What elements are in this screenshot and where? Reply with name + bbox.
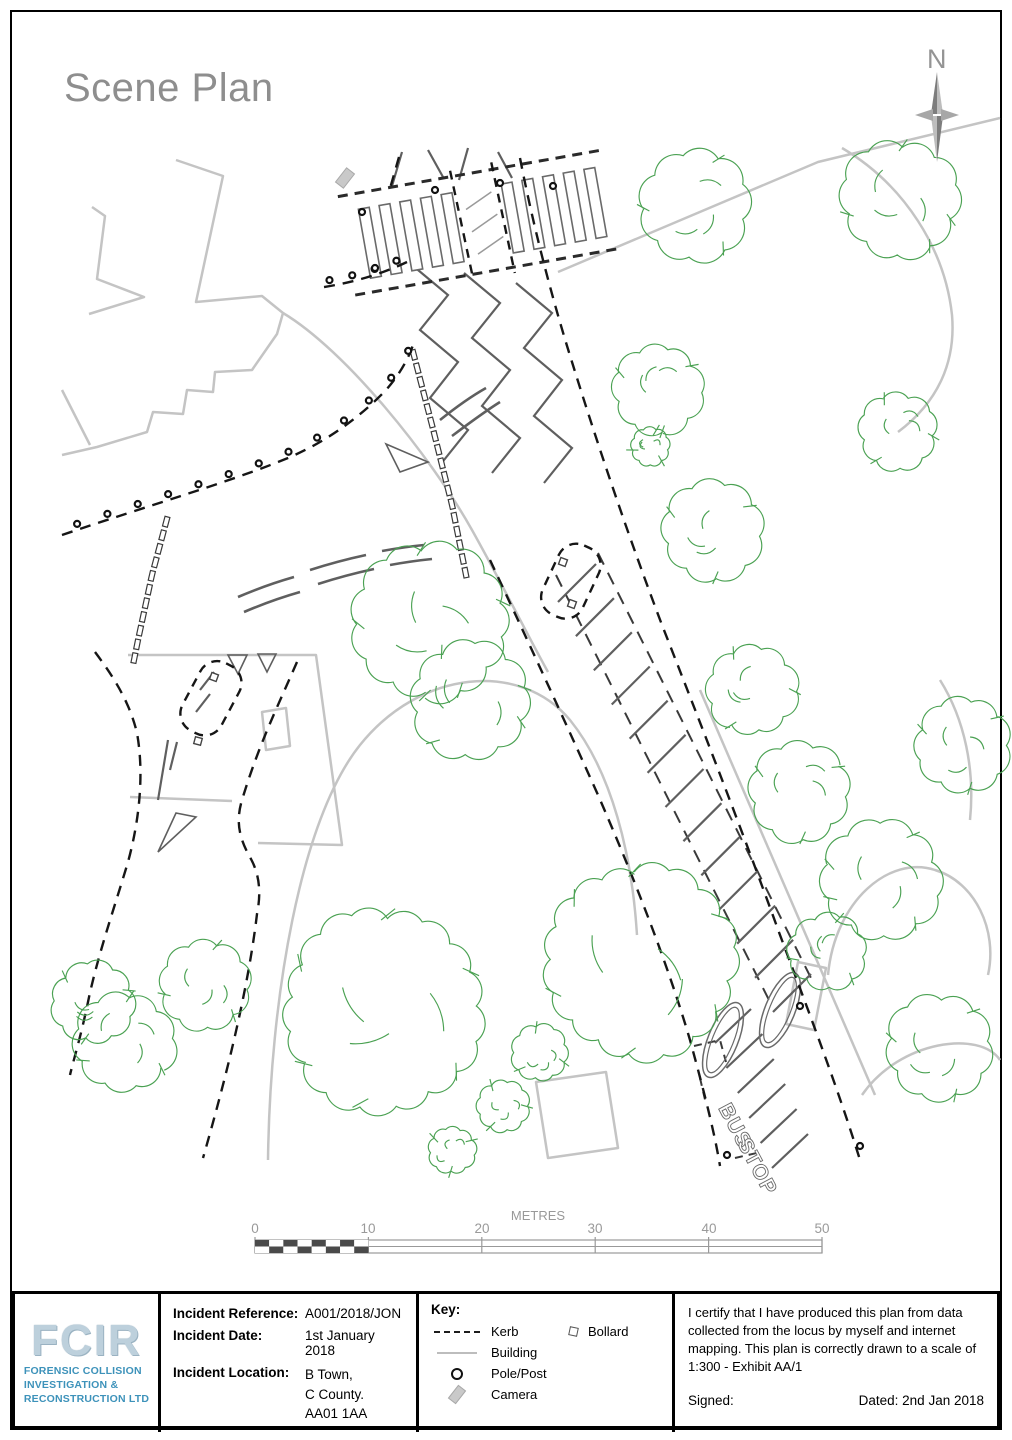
key-item-building: Building	[431, 1342, 660, 1363]
logo-line: RECONSTRUCTION LTD	[24, 1393, 149, 1407]
incident-reference-label: Incident Reference:	[173, 1306, 305, 1321]
scene-plan-map: BUS STOP METRES 0 10 20 30 40 50	[0, 0, 1012, 1280]
kerb-line	[203, 662, 297, 1158]
scale-checker-cell	[354, 1240, 368, 1247]
building-outline	[128, 655, 342, 845]
zebra-stripe	[501, 182, 524, 253]
road-marking	[452, 402, 500, 436]
incident-details: Incident Reference: A001/2018/JON Incide…	[161, 1294, 419, 1432]
pole-post-icon	[451, 1368, 463, 1380]
certification-text: I certify that I have produced this plan…	[688, 1304, 984, 1376]
scale-checker-cell	[269, 1240, 283, 1247]
scale-tick-label: 20	[474, 1221, 489, 1236]
logo-line: INVESTIGATION &	[24, 1379, 149, 1393]
building-outline	[130, 797, 232, 801]
road-marking	[244, 592, 300, 612]
zebra-stripe	[563, 171, 586, 242]
building-outline	[62, 390, 90, 445]
give-way-triangle	[386, 444, 428, 472]
edge-block-marking	[451, 512, 458, 523]
edge-block-marking	[137, 625, 144, 636]
incident-reference-value: A001/2018/JON	[305, 1306, 404, 1321]
edge-block-marking	[142, 598, 149, 609]
dated-label: Dated: 2nd Jan 2018	[859, 1392, 984, 1411]
road-marking	[630, 701, 668, 739]
edge-block-marking	[459, 554, 466, 565]
tree	[819, 820, 943, 940]
road-marking	[428, 150, 443, 177]
edge-block-marking	[148, 570, 155, 581]
pole-post-marker	[405, 348, 411, 354]
logo-line: FORENSIC COLLISION	[24, 1365, 149, 1379]
bollard-marker	[210, 673, 219, 682]
tree	[428, 1126, 477, 1177]
bollard-marker	[194, 737, 203, 746]
tree	[886, 995, 993, 1103]
zebra-stripe	[420, 196, 443, 267]
scale-checker-cell	[255, 1247, 269, 1254]
edge-block-marking	[159, 530, 166, 541]
road-marking	[719, 872, 757, 910]
pole-post-marker	[393, 258, 399, 264]
road-marking	[612, 667, 650, 705]
scale-checker-cell	[340, 1247, 354, 1254]
location-line: AA01 1AA	[305, 1404, 404, 1424]
pole-post-marker	[341, 417, 347, 423]
pole-post-marker	[226, 471, 232, 477]
key-item-pole: Pole/Post	[431, 1363, 660, 1384]
building-outline	[89, 207, 144, 314]
kerb-line-swatch	[434, 1331, 480, 1333]
key-item-label: Building	[491, 1345, 537, 1360]
logo-acronym: FCIR	[31, 1319, 142, 1363]
zebra-stripe	[400, 200, 423, 271]
key-item-bollard: Bollard	[569, 1324, 628, 1339]
zebra-stripe	[522, 178, 545, 249]
pole-post-marker	[165, 491, 171, 497]
scale-checker-cell	[312, 1247, 326, 1254]
scale-unit-label: METRES	[511, 1208, 566, 1223]
edge-block-marking	[435, 444, 442, 455]
road-marking	[761, 1109, 797, 1143]
give-way-triangle	[158, 813, 196, 852]
give-way-triangle	[258, 654, 276, 672]
building-line-swatch	[437, 1352, 477, 1354]
bollard-marker	[568, 600, 577, 609]
road-marking	[318, 569, 374, 584]
pole-post-marker	[724, 1152, 730, 1158]
incident-location-label: Incident Location:	[173, 1365, 305, 1424]
pole-post-marker	[256, 460, 262, 466]
tree	[476, 1079, 533, 1133]
edge-block-marking	[417, 376, 424, 387]
edge-block-marking	[152, 557, 159, 568]
tree	[158, 939, 252, 1031]
tree	[705, 644, 800, 734]
pole-post-marker	[366, 398, 372, 404]
logo-text: FORENSIC COLLISION INVESTIGATION & RECON…	[24, 1365, 149, 1406]
road-marking	[412, 265, 468, 465]
road-marking	[170, 742, 177, 770]
camera-key-icon	[448, 1385, 466, 1405]
pole-post-marker	[74, 521, 80, 527]
scale-bar-checker	[255, 1240, 368, 1253]
scale-checker-cell	[283, 1247, 297, 1254]
building-outline	[536, 1072, 618, 1158]
edge-block-marking	[445, 485, 452, 496]
key-item-label: Bollard	[588, 1324, 628, 1339]
key-item-label: Kerb	[491, 1324, 518, 1339]
tree	[626, 425, 670, 466]
edge-block-marking	[428, 417, 435, 428]
scale-checker-cell	[298, 1247, 312, 1254]
edge-block-marking	[431, 431, 438, 442]
road-marking	[738, 1059, 774, 1093]
edge-block-marking	[424, 404, 431, 415]
north-arrow: N	[903, 44, 973, 184]
tree	[637, 148, 752, 263]
pole-post-marker	[550, 183, 556, 189]
edge-block-marking	[454, 526, 461, 537]
pole-post-marker	[432, 187, 438, 193]
key-item-camera: Camera	[431, 1384, 660, 1405]
road-marking	[392, 152, 402, 186]
kerb-line	[490, 560, 720, 1166]
pole-post-marker	[388, 375, 394, 381]
scale-checker-cell	[255, 1240, 269, 1247]
kerbs-layer	[62, 157, 860, 1166]
tree	[661, 479, 764, 584]
building-outline	[268, 681, 637, 1160]
road-marking	[238, 577, 294, 597]
tree	[511, 1021, 569, 1081]
edge-block-marking	[414, 363, 421, 374]
scale-tick-label: 40	[701, 1221, 716, 1236]
edge-block-marking	[462, 567, 469, 578]
tree	[611, 344, 704, 438]
company-logo: FCIR FORENSIC COLLISION INVESTIGATION & …	[15, 1294, 161, 1432]
tree	[748, 741, 850, 844]
edge-block-marking	[421, 390, 428, 401]
pole-post-marker	[359, 209, 365, 215]
key-item-label: Camera	[491, 1387, 537, 1402]
location-line: C County.	[305, 1385, 404, 1405]
road-marking	[737, 906, 775, 944]
hatch-boundary	[598, 553, 812, 980]
road-roundel	[694, 997, 752, 1082]
scale-tick-label: 0	[251, 1221, 259, 1236]
bus-stop-road-text: BUS STOP	[714, 1100, 782, 1199]
road-marking	[666, 769, 704, 807]
pole-post-marker	[497, 180, 503, 186]
north-label: N	[927, 44, 947, 75]
scale-bar: METRES 0 10 20 30 40 50	[251, 1208, 829, 1253]
pole-post-marker	[195, 481, 201, 487]
edge-block-marking	[131, 653, 138, 664]
road-marking	[558, 564, 596, 602]
building-outline	[62, 160, 283, 455]
signed-label: Signed:	[688, 1392, 734, 1411]
scale-checker-cell	[340, 1240, 354, 1247]
pole-post-marker	[857, 1143, 863, 1149]
road-marking	[158, 740, 168, 800]
camera-icon	[336, 168, 355, 188]
scale-checker-cell	[312, 1240, 326, 1247]
tree	[410, 640, 531, 760]
road-marking	[390, 559, 432, 565]
key-title: Key:	[431, 1302, 660, 1317]
scale-tick-label: 30	[587, 1221, 602, 1236]
road-marking	[196, 694, 210, 712]
pole-post-marker	[349, 272, 355, 278]
road-marking	[594, 632, 632, 670]
edge-block-marking	[139, 612, 146, 623]
scale-tick-label: 10	[360, 1221, 375, 1236]
key-item-label: Pole/Post	[491, 1366, 547, 1381]
zebra-stripe	[441, 193, 464, 264]
pole-post-marker	[797, 1003, 803, 1009]
pole-post-marker	[104, 511, 110, 517]
title-block: FCIR FORENSIC COLLISION INVESTIGATION & …	[12, 1291, 1000, 1429]
tree	[914, 696, 1010, 794]
edge-block-marking	[134, 639, 141, 650]
road-marking	[749, 1084, 785, 1118]
building-outline	[842, 148, 953, 432]
pole-post-marker	[135, 501, 141, 507]
building-outline	[862, 1043, 1000, 1095]
edge-block-marking	[162, 516, 169, 527]
scale-checker-cell	[326, 1247, 340, 1254]
scale-checker-cell	[298, 1240, 312, 1247]
edge-block-marking	[145, 584, 152, 595]
scale-checker-cell	[326, 1240, 340, 1247]
road-marking	[516, 283, 572, 483]
scale-tick-labels: 0 10 20 30 40 50	[251, 1221, 829, 1236]
road-marking	[310, 555, 366, 570]
building-outline	[700, 690, 875, 1095]
refuge-island	[174, 654, 249, 742]
pole-post-marker	[286, 449, 292, 455]
bollard-marker	[559, 558, 568, 567]
pole-post-marker	[372, 265, 378, 271]
incident-date-label: Incident Date:	[173, 1328, 305, 1358]
scale-checker-cell	[354, 1247, 368, 1254]
road-marking	[772, 1134, 808, 1168]
scale-checker-cell	[269, 1247, 283, 1254]
road-marking	[683, 803, 721, 841]
zebra-crossing	[337, 143, 623, 301]
certification: I certify that I have produced this plan…	[675, 1294, 997, 1432]
hatch-boundary	[556, 575, 770, 1002]
kerb-line	[520, 158, 860, 1160]
building-outline	[262, 708, 290, 750]
road-marking	[701, 837, 739, 875]
location-line: B Town,	[305, 1365, 404, 1385]
incident-location-value: B Town, C County. AA01 1AA	[305, 1365, 404, 1424]
tree	[51, 960, 136, 1044]
pole-post-marker	[314, 435, 320, 441]
map-key: Key: Kerb Building Pole/Post Camera Boll…	[419, 1294, 675, 1432]
scale-checker-cell	[283, 1240, 297, 1247]
zebra-stripe	[584, 168, 607, 239]
road-marking	[726, 1034, 762, 1068]
road-marking	[464, 273, 520, 473]
bollard-icon	[568, 1326, 579, 1337]
scale-tick-label: 50	[814, 1221, 829, 1236]
tree	[283, 908, 485, 1116]
refuge-island	[535, 537, 607, 624]
pole-post-marker	[326, 277, 332, 283]
road-marking	[576, 598, 614, 636]
edge-block-marking	[155, 543, 162, 554]
tree	[351, 541, 510, 704]
road-marking	[648, 735, 686, 773]
incident-date-value: 1st January 2018	[305, 1328, 404, 1358]
